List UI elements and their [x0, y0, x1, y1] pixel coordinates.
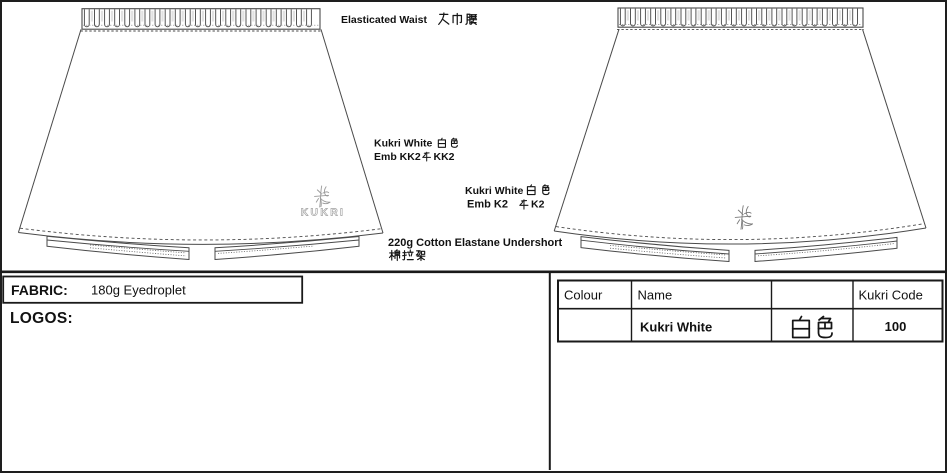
svg-text:Kukri White: Kukri White — [374, 138, 432, 150]
svg-text:LOGOS:: LOGOS: — [10, 310, 73, 327]
svg-text:FABRIC:: FABRIC: — [11, 282, 68, 298]
svg-text:Kukri White: Kukri White — [465, 185, 523, 197]
svg-text:KK2: KK2 — [434, 151, 455, 163]
svg-text:Elasticated Waist: Elasticated Waist — [341, 14, 427, 26]
svg-text:Name: Name — [638, 288, 673, 303]
svg-text:Colour: Colour — [564, 288, 603, 303]
svg-text:Kukri White: Kukri White — [640, 320, 712, 335]
svg-text:Kukri Code: Kukri Code — [859, 288, 923, 303]
svg-text:180g Eyedroplet: 180g Eyedroplet — [91, 283, 186, 298]
svg-text:K2: K2 — [531, 199, 545, 211]
svg-text:220g Cotton Elastane Undershor: 220g Cotton Elastane Undershort — [388, 237, 563, 249]
svg-text:Emb K2: Emb K2 — [467, 199, 508, 211]
svg-text:Emb KK2: Emb KK2 — [374, 151, 421, 163]
svg-text:100: 100 — [885, 319, 907, 334]
svg-text:KUKRI: KUKRI — [301, 208, 346, 219]
